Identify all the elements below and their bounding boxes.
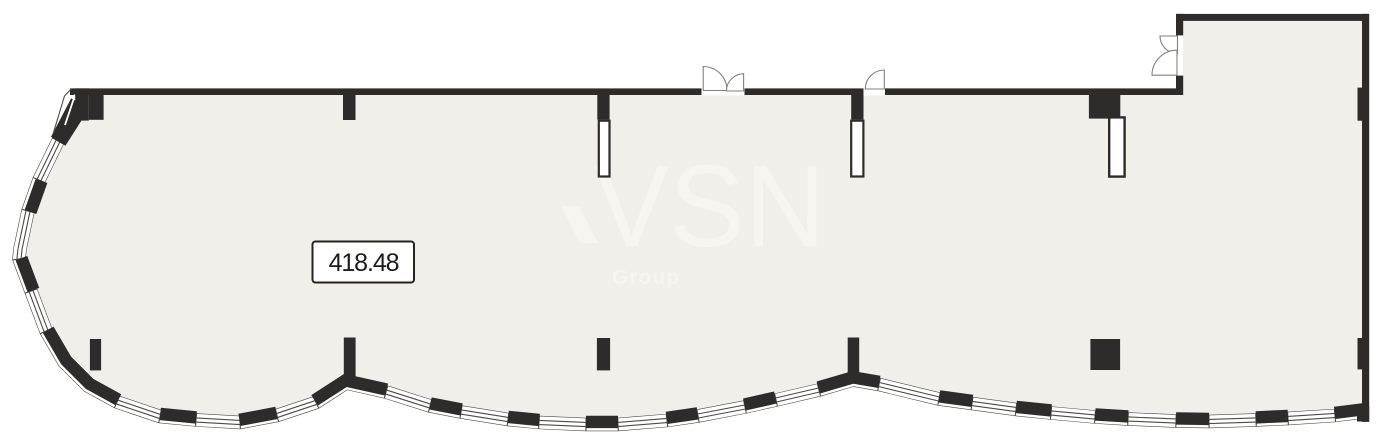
svg-text:VSN: VSN (594, 141, 826, 271)
svg-text:Group: Group (612, 266, 680, 289)
svg-text:418.48: 418.48 (329, 249, 399, 277)
